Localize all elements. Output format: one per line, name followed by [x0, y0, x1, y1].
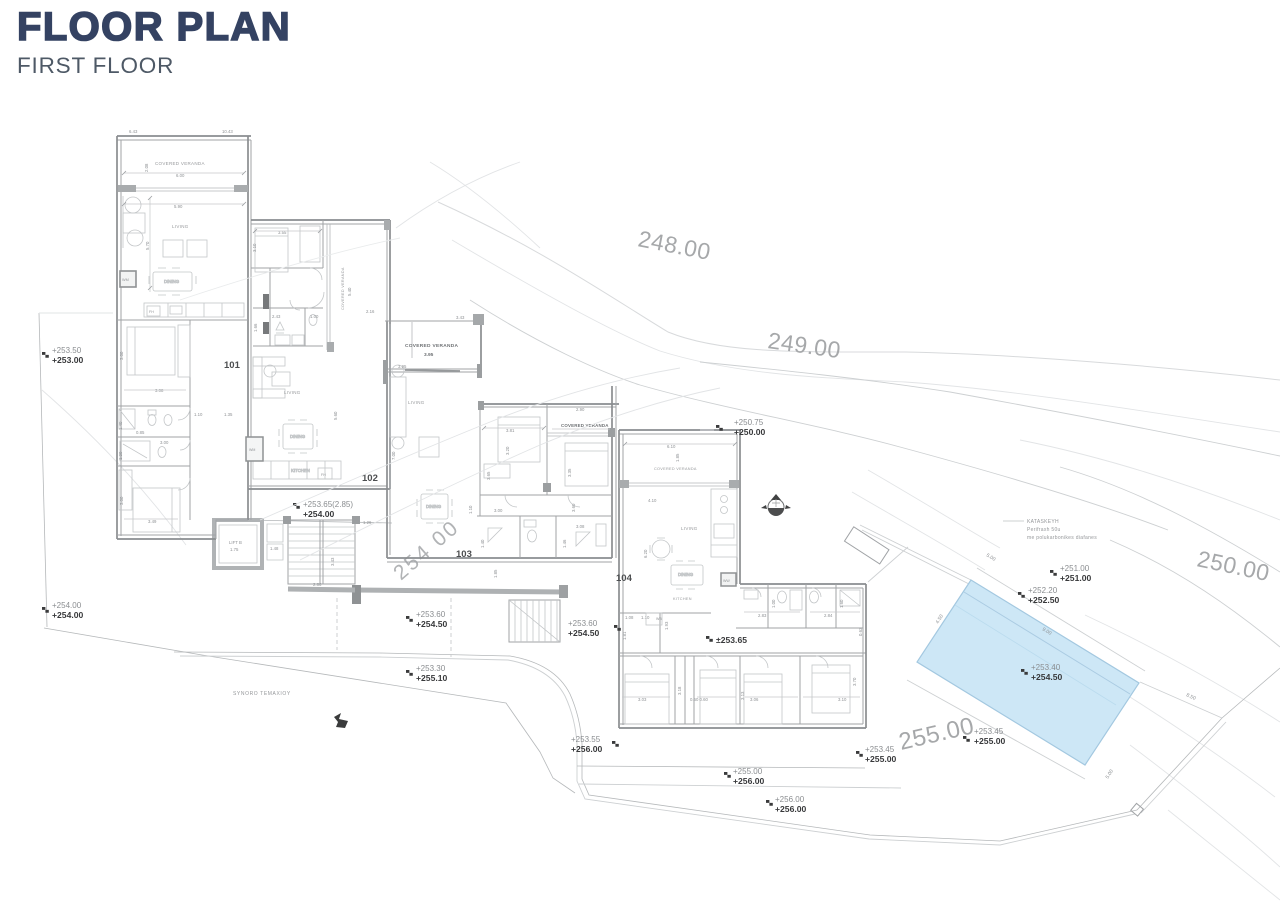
svg-text:1.20: 1.20 [118, 451, 123, 460]
svg-text:2.08: 2.08 [144, 163, 149, 172]
svg-text:1.40: 1.40 [480, 539, 485, 548]
svg-text:+253.55: +253.55 [571, 735, 601, 744]
svg-text:+253.65(2.85): +253.65(2.85) [303, 500, 353, 509]
svg-text:1.40: 1.40 [118, 421, 123, 430]
svg-text:±253.65: ±253.65 [716, 635, 747, 645]
svg-text:+254.50: +254.50 [416, 619, 448, 629]
svg-text:LIFT B: LIFT B [229, 540, 242, 545]
svg-text:LIVING: LIVING [284, 390, 301, 395]
svg-text:+252.50: +252.50 [1028, 595, 1060, 605]
svg-text:5.90: 5.90 [174, 204, 183, 209]
svg-text:LIVING: LIVING [408, 400, 425, 405]
svg-text:COVERED VERANDA: COVERED VERANDA [341, 267, 345, 310]
svg-text:1.35: 1.35 [224, 412, 233, 417]
svg-text:3.08: 3.08 [576, 524, 585, 529]
svg-text:1.85: 1.85 [675, 453, 680, 462]
svg-text:1.93: 1.93 [664, 621, 669, 630]
svg-text:1.81: 1.81 [622, 631, 627, 640]
svg-text:Perifraxh 50u: Perifraxh 50u [1027, 527, 1061, 533]
svg-text:me polukarbonikes diafanes: me polukarbonikes diafanes [1027, 535, 1097, 541]
svg-text:+255.10: +255.10 [416, 673, 448, 683]
svg-text:+253.50: +253.50 [52, 346, 82, 355]
svg-text:+253.40: +253.40 [1031, 663, 1061, 672]
svg-text:DINING: DINING [164, 279, 180, 284]
svg-text:+256.00: +256.00 [775, 795, 805, 804]
svg-text:2.43: 2.43 [272, 314, 281, 319]
svg-text:1.26: 1.26 [363, 520, 372, 525]
svg-text:LIVING: LIVING [681, 526, 698, 531]
svg-text:+250.75: +250.75 [734, 418, 764, 427]
svg-text:5.40: 5.40 [347, 287, 352, 296]
svg-text:KATASKEYH: KATASKEYH [1027, 519, 1059, 525]
svg-text:3.35: 3.35 [567, 468, 572, 477]
svg-text:FH: FH [321, 473, 326, 477]
svg-text:0.60 0.60: 0.60 0.60 [690, 697, 709, 702]
svg-text:WM: WM [122, 278, 129, 282]
svg-text:DINING: DINING [678, 572, 694, 577]
svg-text:3.43: 3.43 [456, 315, 465, 320]
svg-text:+250.00: +250.00 [734, 427, 766, 437]
svg-text:+255.00: +255.00 [733, 767, 763, 776]
svg-text:+255.00: +255.00 [974, 736, 1006, 746]
svg-text:5.70: 5.70 [145, 241, 150, 250]
svg-text:DINING: DINING [426, 504, 442, 509]
svg-text:+252.20: +252.20 [1028, 586, 1058, 595]
svg-text:1.48: 1.48 [270, 546, 279, 551]
svg-text:6.20: 6.20 [643, 549, 648, 558]
svg-text:3.70: 3.70 [852, 677, 857, 686]
svg-text:FLOOR PLAN: FLOOR PLAN [17, 5, 291, 49]
svg-text:4.10: 4.10 [648, 498, 657, 503]
svg-text:3.49: 3.49 [148, 519, 157, 524]
svg-text:COVERED VERANDA: COVERED VERANDA [405, 343, 459, 349]
svg-text:1.10: 1.10 [641, 615, 650, 620]
svg-text:3.00: 3.00 [160, 440, 169, 445]
svg-text:3.95: 3.95 [398, 364, 407, 369]
svg-text:3.20: 3.20 [505, 446, 510, 455]
svg-text:+251.00: +251.00 [1060, 573, 1092, 583]
svg-text:1.08: 1.08 [625, 615, 634, 620]
svg-text:WW: WW [723, 579, 730, 583]
svg-text:0.85: 0.85 [136, 430, 145, 435]
svg-text:0.63: 0.63 [858, 627, 863, 636]
svg-text:3.81: 3.81 [506, 428, 515, 433]
svg-text:3.10: 3.10 [252, 243, 257, 252]
svg-text:+256.00: +256.00 [733, 776, 765, 786]
svg-text:+254.00: +254.00 [52, 610, 84, 620]
svg-text:+256.00: +256.00 [775, 804, 807, 814]
svg-text:+251.00: +251.00 [1060, 564, 1090, 573]
svg-text:KITCHEN: KITCHEN [291, 468, 310, 473]
svg-text:3.06: 3.06 [750, 697, 759, 702]
svg-text:2.83: 2.83 [758, 613, 767, 618]
svg-text:FIRST FLOOR: FIRST FLOOR [17, 53, 174, 78]
svg-text:3.08: 3.08 [155, 388, 164, 393]
svg-text:WM: WM [249, 448, 255, 452]
svg-text:+254.50: +254.50 [568, 628, 600, 638]
svg-text:5.60: 5.60 [333, 411, 338, 420]
svg-text:1.10: 1.10 [468, 505, 473, 514]
svg-text:+253.60: +253.60 [568, 619, 598, 628]
svg-text:+255.00: +255.00 [865, 754, 897, 764]
svg-text:1.00: 1.00 [771, 599, 776, 608]
svg-text:+253.45: +253.45 [865, 745, 895, 754]
svg-text:3.00: 3.00 [494, 508, 503, 513]
svg-text:DINING: DINING [290, 434, 306, 439]
svg-text:3.95: 3.95 [424, 352, 434, 358]
svg-text:3.03: 3.03 [638, 697, 647, 702]
svg-text:LIVING: LIVING [172, 224, 189, 229]
svg-text:+254.00: +254.00 [303, 509, 335, 519]
svg-text:1.00: 1.00 [310, 314, 319, 319]
svg-text:7.00: 7.00 [391, 451, 396, 460]
svg-text:1.46: 1.46 [562, 539, 567, 548]
svg-text:1.85: 1.85 [493, 569, 498, 578]
svg-text:WB: WB [656, 617, 662, 621]
svg-text:+256.00: +256.00 [571, 744, 603, 754]
svg-text:1.66: 1.66 [253, 323, 258, 332]
svg-text:1.10: 1.10 [194, 412, 203, 417]
svg-text:2.84: 2.84 [824, 613, 833, 618]
svg-text:+253.30: +253.30 [416, 664, 446, 673]
svg-text:3.18: 3.18 [677, 686, 682, 695]
svg-text:+254.00: +254.00 [52, 601, 82, 610]
svg-text:104: 104 [616, 573, 633, 584]
svg-text:3.00: 3.00 [119, 351, 124, 360]
svg-text:103: 103 [456, 549, 472, 560]
svg-text:10.43: 10.43 [222, 129, 233, 134]
svg-text:3.10: 3.10 [838, 697, 847, 702]
svg-text:1.75: 1.75 [230, 547, 239, 552]
svg-text:+253.45: +253.45 [974, 727, 1004, 736]
svg-text:2.90: 2.90 [576, 407, 585, 412]
svg-text:3.00: 3.00 [119, 496, 124, 505]
svg-text:FH: FH [149, 310, 154, 314]
svg-text:+254.50: +254.50 [1031, 672, 1063, 682]
svg-text:+253.60: +253.60 [416, 610, 446, 619]
svg-text:COVERED VERANDA: COVERED VERANDA [654, 467, 697, 471]
svg-text:3.60: 3.60 [571, 503, 576, 512]
svg-text:6.43: 6.43 [129, 129, 138, 134]
svg-text:3.65: 3.65 [486, 471, 491, 480]
svg-text:6.00: 6.00 [176, 173, 185, 178]
svg-text:3.13: 3.13 [740, 691, 745, 700]
svg-text:6.10: 6.10 [667, 444, 676, 449]
svg-text:SYNORO TEMAXIOY: SYNORO TEMAXIOY [233, 691, 291, 697]
svg-text:101: 101 [224, 360, 241, 371]
svg-text:1.60: 1.60 [839, 599, 844, 608]
svg-text:COVERED VERANDA: COVERED VERANDA [155, 161, 205, 166]
svg-text:KITCHEN: KITCHEN [673, 597, 692, 601]
svg-text:2.86: 2.86 [313, 582, 322, 587]
svg-text:3.43: 3.43 [330, 557, 335, 566]
svg-text:2.16: 2.16 [366, 309, 375, 314]
svg-text:+253.00: +253.00 [52, 355, 84, 365]
